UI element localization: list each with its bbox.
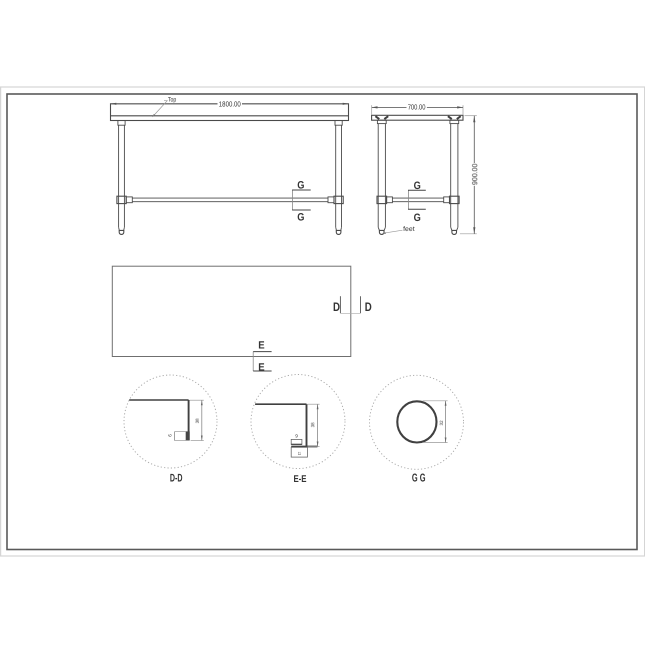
svg-text:D-D: D-D [170,472,183,484]
svg-text:D: D [333,300,340,314]
svg-text:feet: feet [403,226,415,233]
svg-text:G: G [297,180,304,192]
svg-text:E-E: E-E [293,474,306,485]
svg-text:G: G [414,180,421,192]
svg-text:E: E [258,361,264,373]
svg-text:32: 32 [439,420,444,425]
svg-text:D: D [365,300,372,314]
svg-text:G: G [414,212,421,224]
svg-text:Top: Top [168,97,177,104]
svg-text:38: 38 [195,418,200,423]
svg-text:E: E [258,340,264,352]
svg-text:38: 38 [310,422,315,427]
svg-text:11: 11 [298,451,301,456]
svg-text:G G: G G [412,472,426,484]
svg-text:G: G [297,212,304,224]
svg-text:900.00: 900.00 [470,164,479,186]
svg-text:700.00: 700.00 [408,102,426,111]
svg-text:9: 9 [295,433,298,438]
svg-text:1800.00: 1800.00 [219,100,241,109]
svg-text:6: 6 [168,434,173,437]
